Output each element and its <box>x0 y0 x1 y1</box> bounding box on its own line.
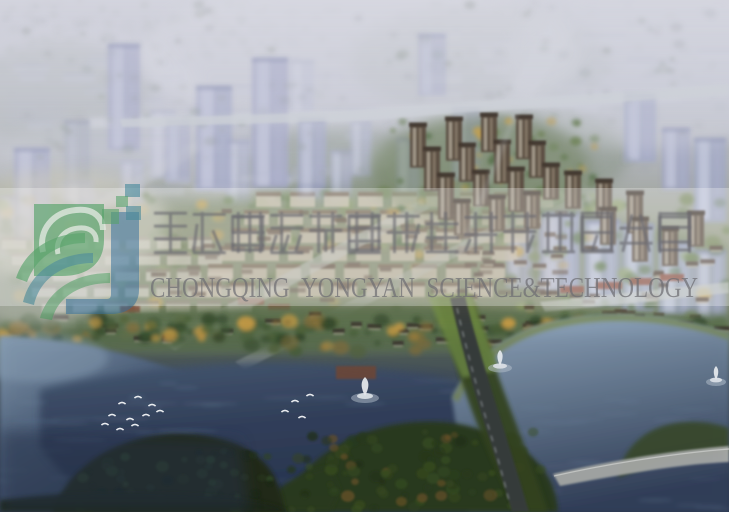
svg-text:CHONGQING YONGYAN SCIENCE&TE: CHONGQING YONGYAN SCIENCE&TECHNOLOGY <box>150 272 698 304</box>
